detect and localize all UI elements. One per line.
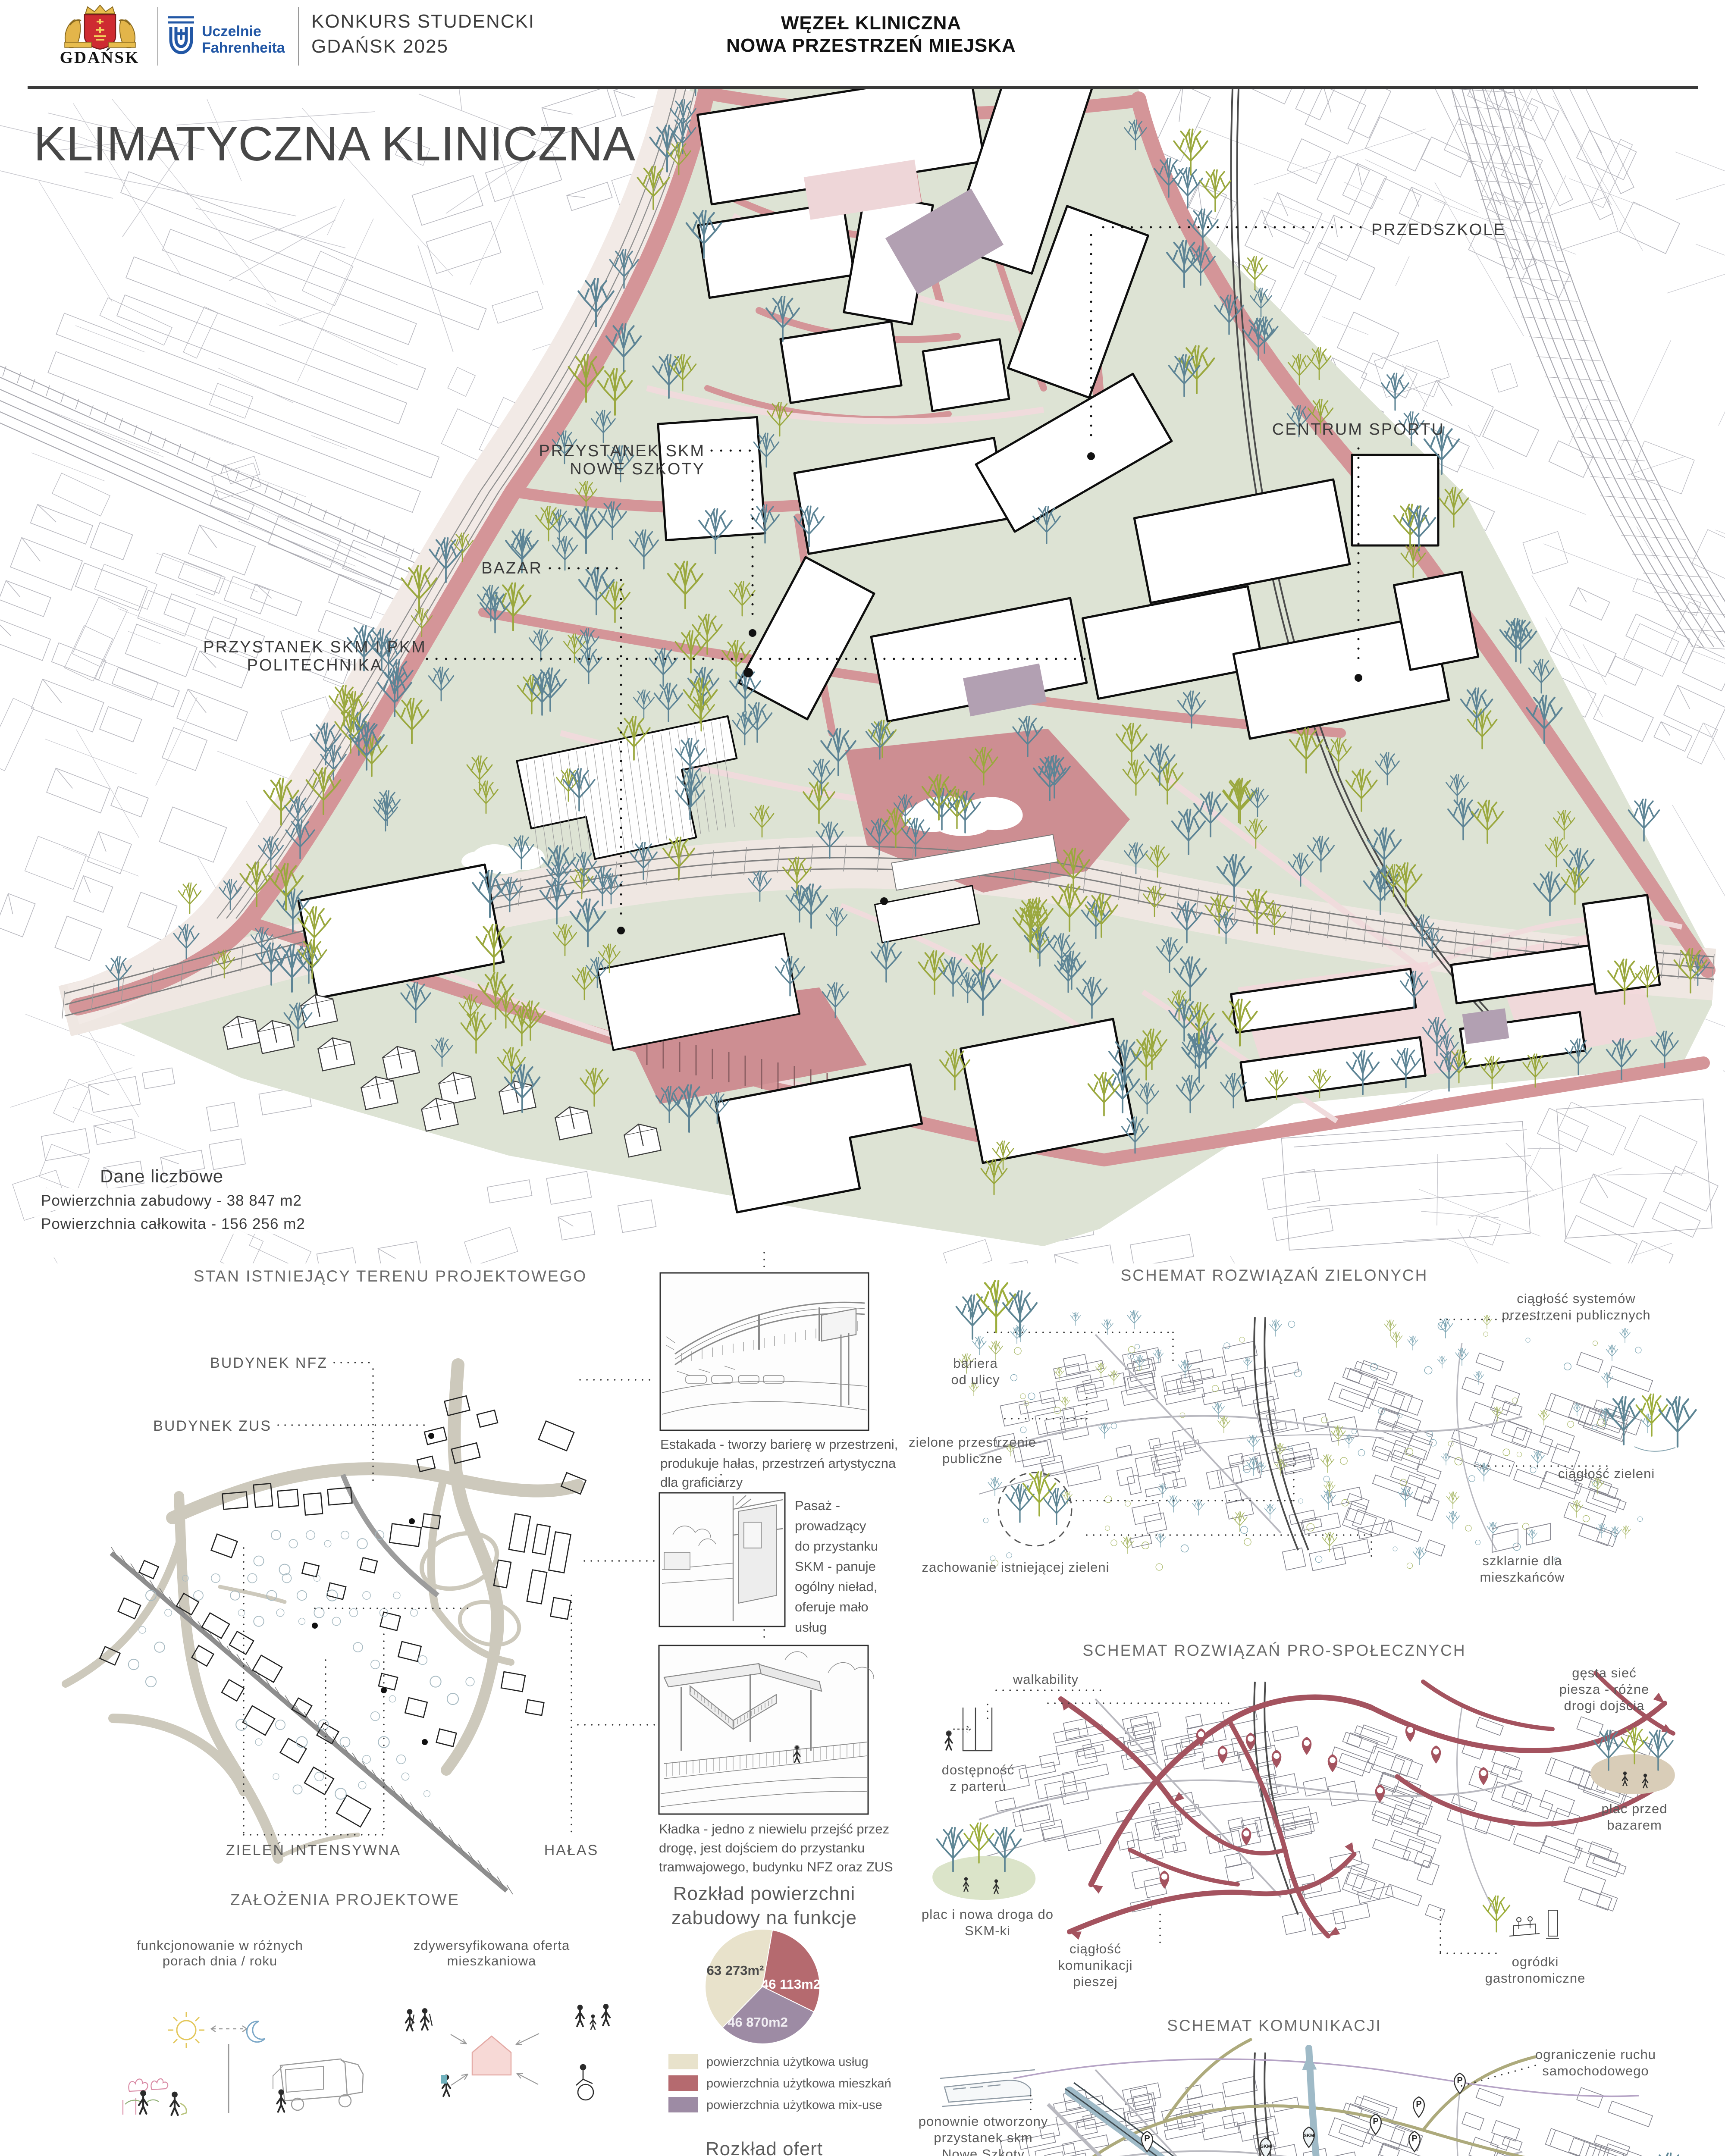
svg-text:drogę, jest dojściem do pr: drogę, jest dojściem do przystanku [659, 1840, 865, 1855]
svg-text:gęsta sieć: gęsta sieć [1572, 1665, 1637, 1680]
svg-text:funkcjonowanie w różnych: funkcjonowanie w różnych [137, 1938, 303, 1953]
svg-text:zachowanie istniejącej zieleni: zachowanie istniejącej zieleni [922, 1560, 1110, 1575]
svg-text:samochodowego: samochodowego [1542, 2063, 1649, 2078]
svg-text:Estakada - tworzy barierę w pr: Estakada - tworzy barierę w przestrzeni, [660, 1437, 898, 1452]
svg-text:bazarem: bazarem [1607, 1818, 1662, 1833]
svg-text:SKM: SKM [1304, 2133, 1314, 2138]
svg-text:SCHEMAT ROZWIĄZAŃ PRO-SPOŁECZN: SCHEMAT ROZWIĄZAŃ PRO-SPOŁECZNYCH [1082, 1642, 1466, 1659]
svg-text:od ulicy: od ulicy [951, 1372, 1000, 1387]
svg-text:gastronomiczne: gastronomiczne [1485, 1971, 1586, 1986]
svg-text:Pasaż -: Pasaż - [795, 1498, 840, 1513]
svg-text:POLITECHNIKA: POLITECHNIKA [247, 656, 383, 674]
svg-text:szklarnie dla: szklarnie dla [1482, 1553, 1562, 1568]
svg-text:przestrzeni publicznych: przestrzeni publicznych [1502, 1307, 1650, 1322]
svg-text:HAŁAS: HAŁAS [544, 1842, 599, 1858]
svg-text:PRZYSTANEK SKM I PKM: PRZYSTANEK SKM I PKM [203, 638, 426, 656]
svg-text:P: P [1373, 2117, 1378, 2126]
svg-text:Dane liczbowe: Dane liczbowe [100, 1166, 223, 1186]
svg-text:BUDYNEK NFZ: BUDYNEK NFZ [210, 1355, 328, 1371]
svg-text:Powierzchnia zabudowy - 38 847: Powierzchnia zabudowy - 38 847 m2 [41, 1192, 302, 1209]
svg-text:Rozkład ofert: Rozkład ofert [706, 2138, 823, 2156]
svg-text:CENTRUM SPORTU: CENTRUM SPORTU [1272, 420, 1445, 439]
svg-text:z parteru: z parteru [950, 1779, 1006, 1794]
svg-text:dostępność: dostępność [942, 1762, 1015, 1777]
svg-text:GDAŃSK: GDAŃSK [60, 48, 140, 67]
svg-text:STAN ISTNIEJĄCY TERENU PROJEKT: STAN ISTNIEJĄCY TERENU PROJEKTOWEGO [194, 1267, 587, 1285]
svg-text:63 273m²: 63 273m² [707, 1963, 764, 1978]
svg-text:przystanek skm: przystanek skm [934, 2130, 1032, 2145]
svg-text:SKM: SKM [1261, 2144, 1271, 2149]
svg-text:Rozkład powierzchni: Rozkład powierzchni [673, 1883, 856, 1904]
svg-text:P: P [1411, 2134, 1417, 2143]
svg-text:porach dnia / roku: porach dnia / roku [163, 1953, 277, 1968]
svg-text:GDAŃSK 2025: GDAŃSK 2025 [311, 36, 448, 57]
svg-text:SKM - panuje: SKM - panuje [795, 1559, 876, 1574]
svg-text:ogródki: ogródki [1512, 1954, 1559, 1969]
svg-text:P: P [1457, 2076, 1462, 2085]
svg-text:ogólny nieład,: ogólny nieład, [795, 1579, 877, 1594]
svg-text:mieszkaniowa: mieszkaniowa [447, 1953, 536, 1968]
svg-text:Nowe Szkoty: Nowe Szkoty [942, 2147, 1025, 2156]
svg-text:bariera: bariera [953, 1356, 998, 1371]
svg-text:tramwajowego, budynku NFZ oraz: tramwajowego, budynku NFZ oraz ZUS [659, 1859, 893, 1874]
svg-text:SCHEMAT ROZWIĄZAŃ ZIELONYCH: SCHEMAT ROZWIĄZAŃ ZIELONYCH [1121, 1266, 1428, 1284]
svg-text:oferuje mało: oferuje mało [795, 1599, 869, 1614]
svg-text:NOWE SZKOTY: NOWE SZKOTY [570, 460, 705, 478]
svg-text:do przystanku: do przystanku [795, 1539, 878, 1554]
svg-text:ciągłość zieleni: ciągłość zieleni [1558, 1466, 1655, 1481]
svg-text:ciągłość systemów: ciągłość systemów [1517, 1291, 1635, 1306]
svg-text:ZIELEŃ INTENSYWNA: ZIELEŃ INTENSYWNA [226, 1842, 401, 1858]
svg-text:piesza - różne: piesza - różne [1559, 1682, 1650, 1697]
svg-text:plac przed: plac przed [1601, 1801, 1667, 1816]
svg-text:Fahrenheita: Fahrenheita [202, 40, 285, 56]
svg-text:ponownie otworzony: ponownie otworzony [919, 2114, 1048, 2129]
svg-text:NOWA PRZESTRZEŃ MIEJSKA: NOWA PRZESTRZEŃ MIEJSKA [726, 34, 1016, 56]
svg-text:BAZAR: BAZAR [481, 559, 543, 577]
svg-text:P: P [1416, 2100, 1421, 2109]
svg-text:usług: usług [795, 1620, 827, 1635]
svg-text:publiczne: publiczne [942, 1451, 1003, 1466]
svg-text:KONKURS STUDENCKI: KONKURS STUDENCKI [311, 11, 535, 32]
svg-text:Powierzchnia całkowita - 156: Powierzchnia całkowita - 156 256 m2 [41, 1216, 305, 1232]
svg-text:powierzchnia użytkowa mix-use: powierzchnia użytkowa mix-use [706, 2098, 882, 2112]
svg-text:KLIMATYCZNA KLINICZNA: KLIMATYCZNA KLINICZNA [34, 117, 635, 171]
svg-text:ciągłość: ciągłość [1069, 1941, 1121, 1956]
svg-text:powierzchnia użytkowa usług: powierzchnia użytkowa usług [706, 2055, 869, 2069]
svg-text:powierzchnia użytkowa mieszkań: powierzchnia użytkowa mieszkań [706, 2077, 891, 2090]
svg-text:PRZYSTANEK SKM: PRZYSTANEK SKM [539, 442, 705, 460]
svg-text:plac i nowa droga do: plac i nowa droga do [922, 1907, 1054, 1922]
svg-text:ograniczenie ruchu: ograniczenie ruchu [1535, 2047, 1656, 2062]
svg-text:Kładka - jedno z niewielu prze: Kładka - jedno z niewielu przejść przez [659, 1821, 889, 1836]
svg-text:BUDYNEK ZUS: BUDYNEK ZUS [153, 1418, 272, 1434]
svg-text:WĘZEŁ KLINICZNA: WĘZEŁ KLINICZNA [781, 13, 961, 34]
svg-text:PRZEDSZKOLE: PRZEDSZKOLE [1371, 221, 1506, 239]
svg-text:dla graficiarzy: dla graficiarzy [660, 1475, 743, 1490]
svg-text:komunikacji: komunikacji [1058, 1958, 1133, 1973]
svg-text:SKM-ki: SKM-ki [965, 1923, 1010, 1938]
svg-text:prowadzący: prowadzący [795, 1518, 866, 1533]
svg-text:46 113m2: 46 113m2 [761, 1977, 821, 1992]
svg-text:drogi dojścia: drogi dojścia [1564, 1698, 1644, 1713]
svg-text:46 870m2: 46 870m2 [728, 2015, 788, 2030]
svg-text:walkability: walkability [1013, 1672, 1079, 1687]
svg-text:P: P [1144, 2134, 1150, 2143]
svg-text:mieszkańców: mieszkańców [1480, 1570, 1565, 1585]
svg-text:zielone przestrzenie: zielone przestrzenie [909, 1435, 1036, 1450]
svg-text:SCHEMAT KOMUNIKACJI: SCHEMAT KOMUNIKACJI [1167, 2017, 1382, 2034]
svg-text:zdywersyfikowana oferta: zdywersyfikowana oferta [414, 1938, 570, 1953]
svg-text:pieszej: pieszej [1073, 1974, 1118, 1989]
svg-text:Uczelnie: Uczelnie [202, 23, 261, 40]
svg-text:produkuje hałas, przestrzeń ar: produkuje hałas, przestrzeń artystyczna [660, 1456, 896, 1471]
svg-text:ZAŁOŻENIA PROJEKTOWE: ZAŁOŻENIA PROJEKTOWE [230, 1891, 460, 1908]
svg-text:zabudowy na funkcje: zabudowy na funkcje [671, 1907, 857, 1928]
